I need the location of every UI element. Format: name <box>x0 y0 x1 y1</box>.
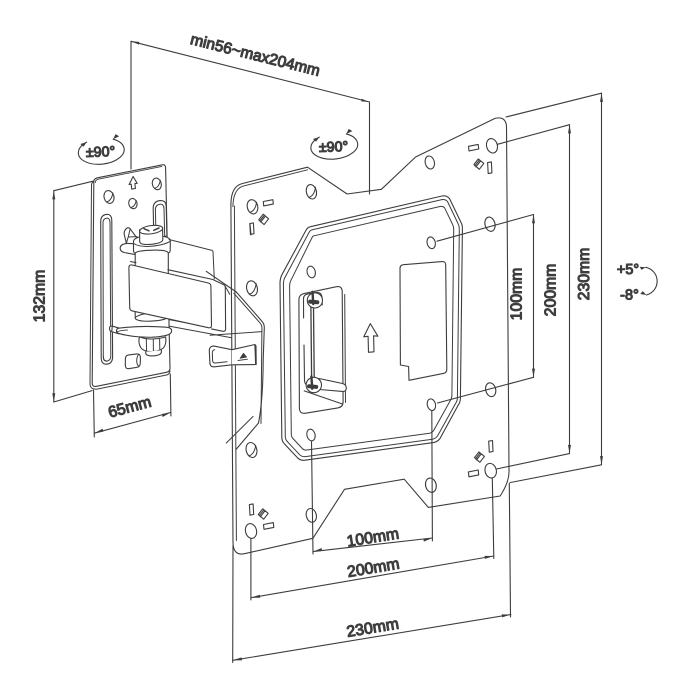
svg-text:230mm: 230mm <box>576 248 593 301</box>
svg-text:-8°: -8° <box>620 287 639 303</box>
svg-text:200mm: 200mm <box>543 264 560 317</box>
svg-text:200mm: 200mm <box>346 556 401 581</box>
svg-text:132mm: 132mm <box>32 270 49 323</box>
svg-text:100mm: 100mm <box>346 526 401 551</box>
svg-text:100mm: 100mm <box>509 268 526 321</box>
svg-text:±90°: ±90° <box>319 139 349 156</box>
svg-text:±90°: ±90° <box>86 144 116 161</box>
svg-text:65mm: 65mm <box>106 394 153 422</box>
svg-text:+5°: +5° <box>617 262 639 278</box>
